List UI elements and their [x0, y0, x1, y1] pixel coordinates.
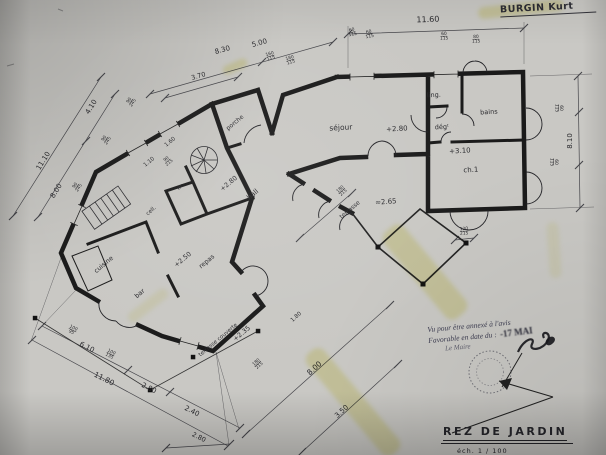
- plan-labels: séjour+2.80ling.bainsdégᵗ+3.10ch.1porche…: [35, 15, 574, 444]
- dim-label: 180215: [335, 184, 348, 198]
- dim-label: 8.00: [49, 182, 64, 199]
- interior-walls: [88, 77, 524, 296]
- dim-label: 11.10: [35, 150, 52, 171]
- spiral-stair: [191, 147, 218, 174]
- drawing-title: REZ DE JARDIN: [443, 425, 567, 441]
- walls: [61, 72, 525, 351]
- dim-label: 160115: [265, 50, 276, 63]
- dim-label: 2.80: [140, 381, 158, 395]
- dim-label: 1.60: [164, 136, 178, 149]
- dim-label: 6.10: [78, 340, 96, 354]
- dim-label: 60115: [548, 158, 559, 167]
- dim-label: 1.80: [290, 311, 303, 324]
- room-label: bains: [480, 108, 498, 117]
- dim-label: 3.70: [190, 70, 206, 82]
- dim-label: 90215: [161, 154, 174, 168]
- floor-plan-drawing: séjour+2.80ling.bainsdégᵗ+3.10ch.1porche…: [0, 0, 606, 455]
- dim-label: 8.00: [305, 359, 324, 377]
- dim-label: 120215: [460, 226, 469, 237]
- level-label: ≈2.65: [375, 197, 397, 207]
- dim-label: 11.60: [416, 15, 439, 25]
- title-block: REZ DE JARDIN éch. 1 / 100: [443, 420, 583, 455]
- level-label: +2.80: [386, 124, 408, 133]
- room-label: bar: [133, 287, 147, 300]
- dim-label: 80115: [472, 34, 481, 45]
- room-label: cuisine: [92, 254, 115, 275]
- terrace-diamond: [352, 209, 469, 287]
- dim-label: 180215: [251, 357, 264, 371]
- level-label: +2.80: [219, 174, 239, 193]
- dim-label: 8.30: [214, 44, 231, 56]
- dim-label: 180115: [285, 54, 296, 67]
- dim-label: 60115: [440, 31, 449, 42]
- dim-label: 60115: [553, 104, 564, 113]
- drawing-scale: éch. 1 / 100: [457, 447, 583, 455]
- dim-label: 10095: [66, 324, 78, 337]
- dim-label: 60115: [347, 26, 358, 38]
- level-label: +3.10: [449, 146, 471, 155]
- room-label: dégᵗ: [435, 123, 450, 132]
- outer-walls: [61, 72, 525, 351]
- room-label: séjour: [329, 122, 353, 132]
- dim-label: 2.80: [191, 430, 208, 444]
- room-label: cell.: [145, 205, 158, 217]
- dim-label: 60115: [364, 28, 375, 40]
- room-label: porche: [225, 113, 246, 132]
- pencil-marks: [7, 9, 63, 66]
- dim-label: 90245: [99, 133, 113, 146]
- floor-plan-photo: séjour+2.80ling.bainsdégᵗ+3.10ch.1porche…: [0, 0, 606, 455]
- dim-label: 90245: [124, 95, 138, 108]
- dim-label: 1.10: [143, 156, 157, 169]
- level-label: +2.50: [173, 250, 193, 269]
- room-label: repas: [197, 252, 216, 270]
- dim-label: 8.10: [566, 133, 574, 149]
- room-label: ling.: [427, 91, 441, 100]
- dim-label: 5.00: [251, 37, 268, 49]
- dim-label: 90245: [70, 180, 84, 193]
- dim-label: 3.50: [333, 403, 350, 419]
- dim-label: 11.80: [93, 370, 116, 388]
- room-label: ch.1: [463, 166, 478, 175]
